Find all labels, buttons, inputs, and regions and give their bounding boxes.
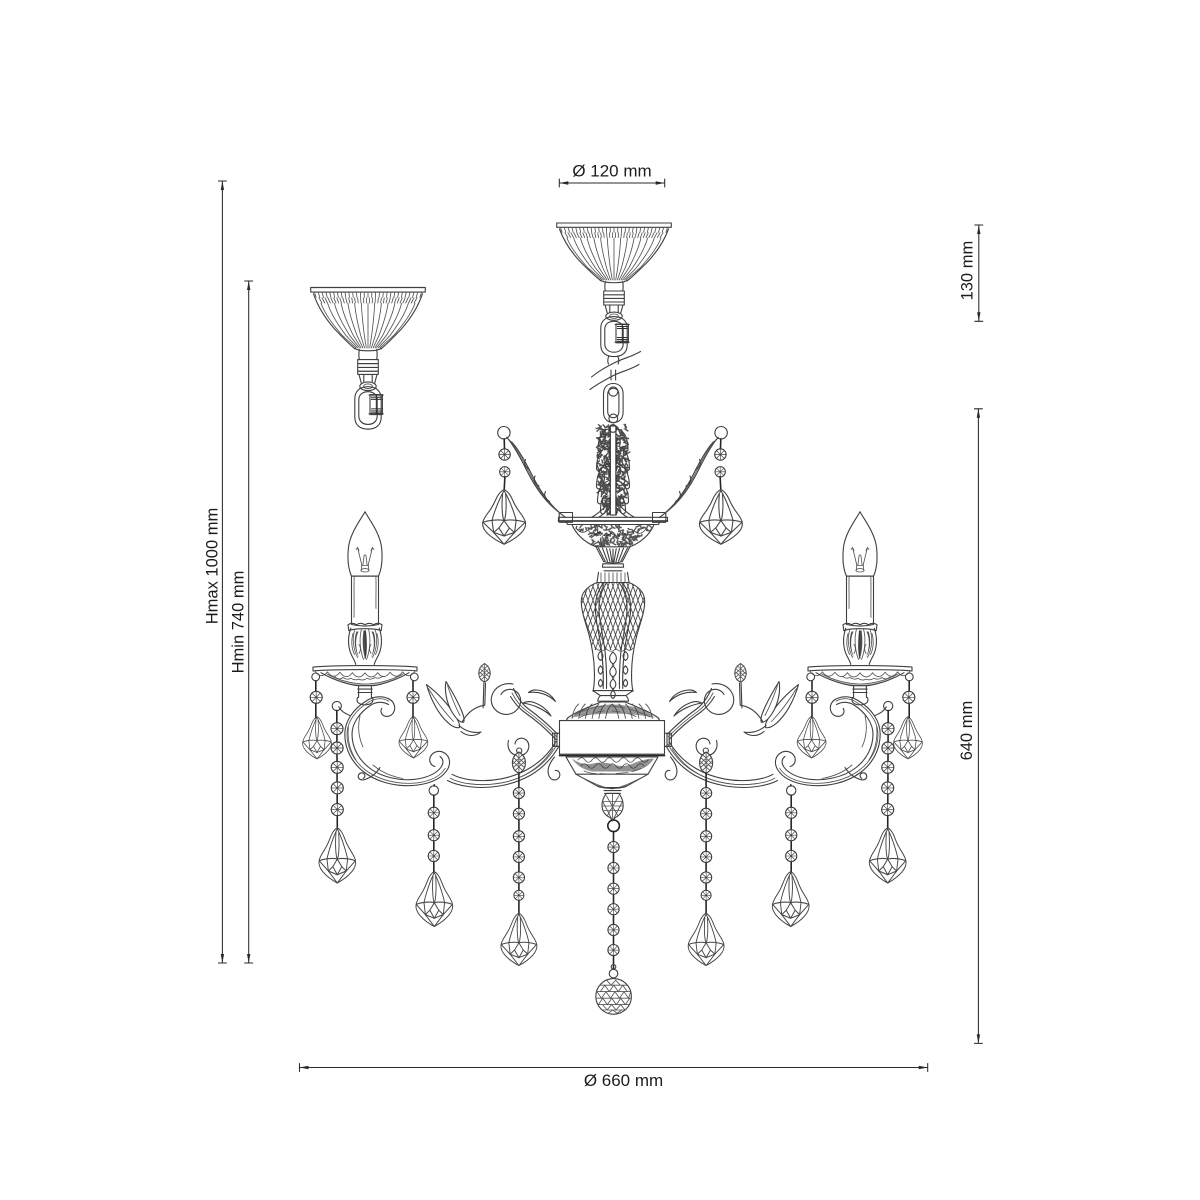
svg-text:Hmin 740 mm: Hmin 740 mm [230, 571, 248, 674]
svg-text:130 mm: 130 mm [959, 241, 977, 301]
svg-text:640 mm: 640 mm [958, 701, 976, 761]
svg-text:Ø 120 mm: Ø 120 mm [572, 162, 651, 181]
svg-text:Ø 660 mm: Ø 660 mm [584, 1071, 663, 1090]
svg-text:Hmax 1000 mm: Hmax 1000 mm [204, 508, 222, 624]
